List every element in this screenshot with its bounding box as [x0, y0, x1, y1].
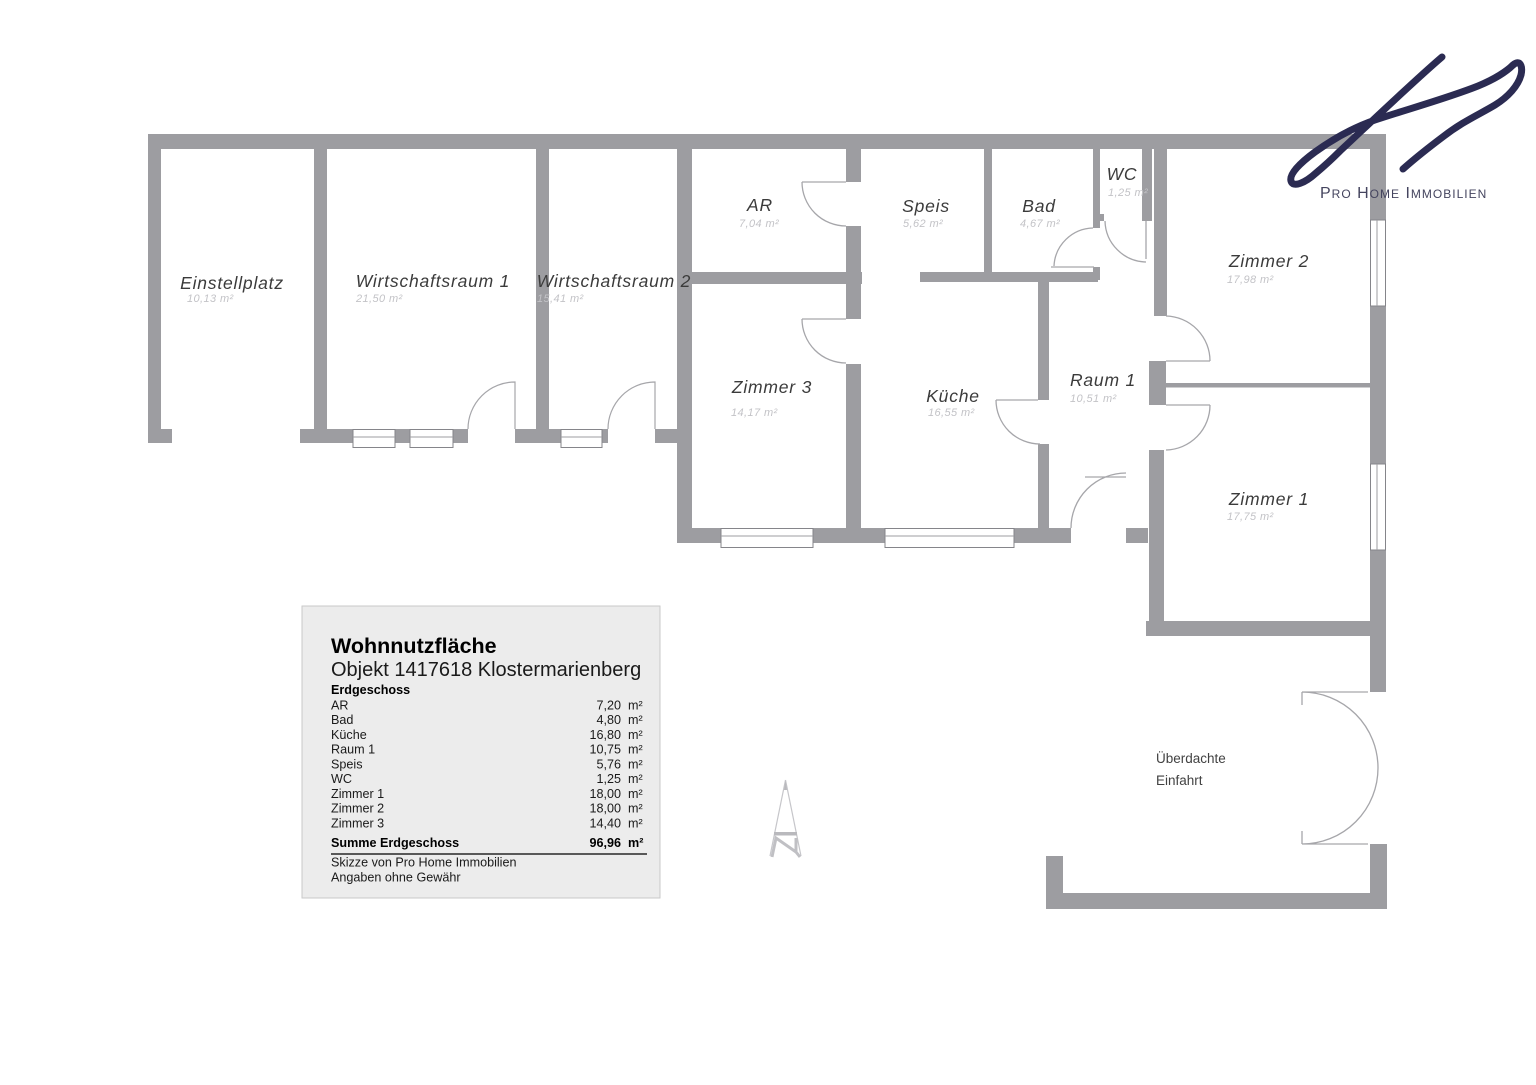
svg-text:m²: m² [628, 817, 643, 831]
svg-text:96,96: 96,96 [589, 836, 621, 850]
svg-text:18,00: 18,00 [589, 802, 621, 816]
svg-text:7,04 m²: 7,04 m² [739, 218, 779, 230]
svg-text:Bad: Bad [1022, 196, 1056, 216]
svg-text:Erdgeschoss: Erdgeschoss [331, 683, 410, 697]
svg-text:m²: m² [628, 802, 643, 816]
svg-text:10,75: 10,75 [589, 743, 621, 757]
svg-text:Angaben ohne Gewähr: Angaben ohne Gewähr [331, 871, 461, 885]
svg-text:AR: AR [746, 195, 773, 215]
svg-text:Wohnnutzfläche: Wohnnutzfläche [331, 634, 497, 658]
svg-text:16,55 m²: 16,55 m² [928, 407, 975, 419]
svg-text:17,75 m²: 17,75 m² [1227, 511, 1274, 523]
svg-text:Zimmer 2: Zimmer 2 [1228, 251, 1309, 271]
svg-text:m²: m² [628, 713, 643, 727]
svg-text:Summe Erdgeschoss: Summe Erdgeschoss [331, 836, 459, 850]
svg-text:15,41 m²: 15,41 m² [537, 293, 584, 305]
svg-text:Skizze von Pro Home Immobilien: Skizze von Pro Home Immobilien [331, 856, 516, 870]
svg-text:Küche: Küche [331, 728, 367, 742]
svg-text:Speis: Speis [902, 196, 950, 216]
svg-text:AR: AR [331, 699, 349, 713]
svg-text:Küche: Küche [926, 386, 980, 406]
svg-text:10,51 m²: 10,51 m² [1070, 393, 1117, 405]
svg-text:5,62 m²: 5,62 m² [903, 218, 943, 230]
svg-text:WC: WC [1107, 164, 1138, 184]
svg-text:1,25 m²: 1,25 m² [1108, 187, 1148, 199]
svg-text:Zimmer 3: Zimmer 3 [331, 817, 384, 831]
svg-text:4,67 m²: 4,67 m² [1020, 218, 1060, 230]
svg-text:Überdachte: Überdachte [1156, 751, 1226, 766]
svg-text:21,50 m²: 21,50 m² [355, 293, 403, 305]
svg-text:4,80: 4,80 [596, 713, 621, 727]
svg-text:Zimmer 2: Zimmer 2 [331, 802, 384, 816]
svg-text:18,00: 18,00 [589, 787, 621, 801]
svg-text:16,80: 16,80 [589, 728, 621, 742]
svg-text:m²: m² [628, 787, 643, 801]
svg-text:m²: m² [628, 836, 643, 850]
svg-text:7,20: 7,20 [596, 699, 621, 713]
svg-text:Wirtschaftsraum 1: Wirtschaftsraum 1 [356, 271, 510, 291]
svg-text:17,98 m²: 17,98 m² [1227, 274, 1274, 286]
svg-text:Zimmer 3: Zimmer 3 [731, 377, 812, 397]
svg-text:m²: m² [628, 728, 643, 742]
svg-text:Bad: Bad [331, 713, 353, 727]
svg-text:14,17 m²: 14,17 m² [731, 407, 778, 419]
svg-text:Einfahrt: Einfahrt [1156, 773, 1203, 788]
svg-text:m²: m² [628, 758, 643, 772]
svg-text:Objekt 1417618 Klostermarienbe: Objekt 1417618 Klostermarienberg [331, 659, 641, 681]
svg-text:Speis: Speis [331, 758, 363, 772]
svg-text:WC: WC [331, 772, 352, 786]
svg-text:5,76: 5,76 [596, 758, 621, 772]
svg-text:m²: m² [628, 743, 643, 757]
svg-text:Zimmer 1: Zimmer 1 [331, 787, 384, 801]
svg-text:Einstellplatz: Einstellplatz [180, 273, 284, 293]
svg-text:10,13 m²: 10,13 m² [187, 293, 234, 305]
svg-text:Raum 1: Raum 1 [331, 743, 375, 757]
svg-text:m²: m² [628, 699, 643, 713]
svg-text:PRO HOME IMMOBILIEN: PRO HOME IMMOBILIEN [1320, 185, 1487, 202]
svg-text:1,25: 1,25 [596, 772, 621, 786]
svg-text:Wirtschaftsraum 2: Wirtschaftsraum 2 [537, 271, 691, 291]
svg-text:14,40: 14,40 [589, 817, 621, 831]
svg-text:Raum 1: Raum 1 [1070, 370, 1136, 390]
svg-text:m²: m² [628, 772, 643, 786]
svg-text:Zimmer 1: Zimmer 1 [1228, 489, 1309, 509]
